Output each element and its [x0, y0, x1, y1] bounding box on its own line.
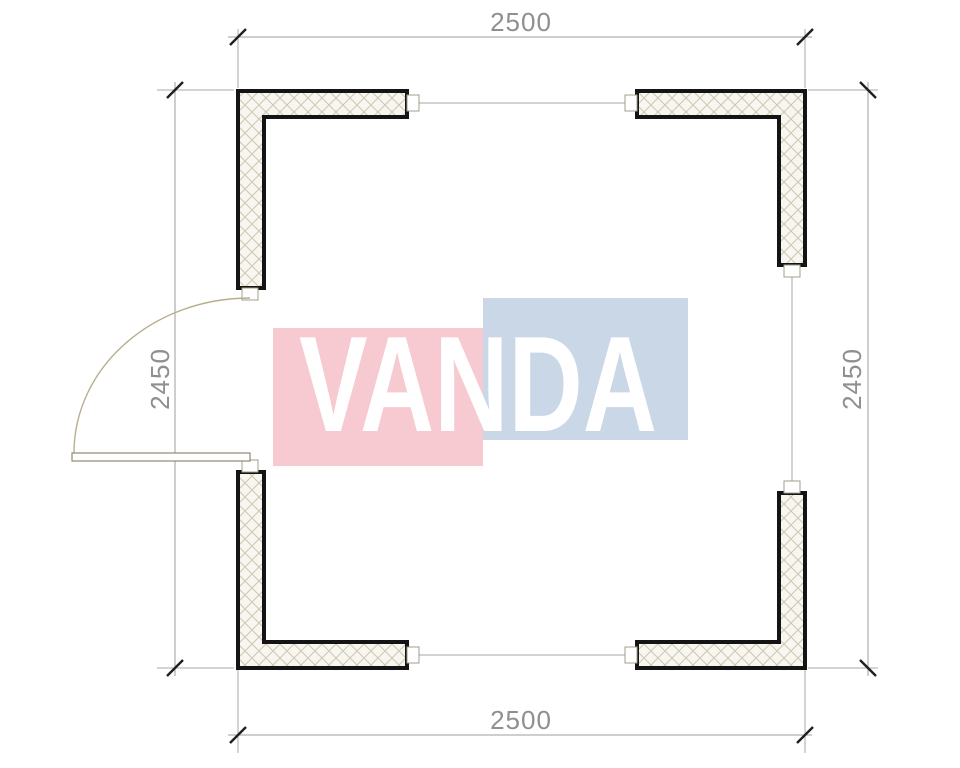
- end-cap: [242, 460, 258, 472]
- end-cap: [625, 95, 637, 111]
- dimension-label-right: 2450: [837, 348, 867, 410]
- watermark-logo: VANDA: [273, 298, 688, 466]
- wall-top-left: [238, 91, 407, 288]
- wall-bottom-right: [637, 493, 805, 668]
- dimension-label-bottom: 2500: [490, 705, 552, 735]
- wall-top-right: [637, 91, 805, 265]
- end-cap: [407, 647, 419, 663]
- dimension-label-left: 2450: [145, 348, 175, 410]
- wall-bottom-left: [238, 472, 407, 668]
- end-cap: [625, 647, 637, 663]
- floor-plan-canvas: VANDA: [0, 0, 960, 768]
- door-leaf: [72, 453, 250, 461]
- watermark-text: VANDA: [299, 308, 657, 460]
- end-cap: [407, 95, 419, 111]
- end-cap: [784, 265, 800, 277]
- dimension-label-top: 2500: [490, 7, 552, 37]
- floor-plan-drawing: VANDA: [0, 0, 960, 768]
- end-cap: [784, 481, 800, 493]
